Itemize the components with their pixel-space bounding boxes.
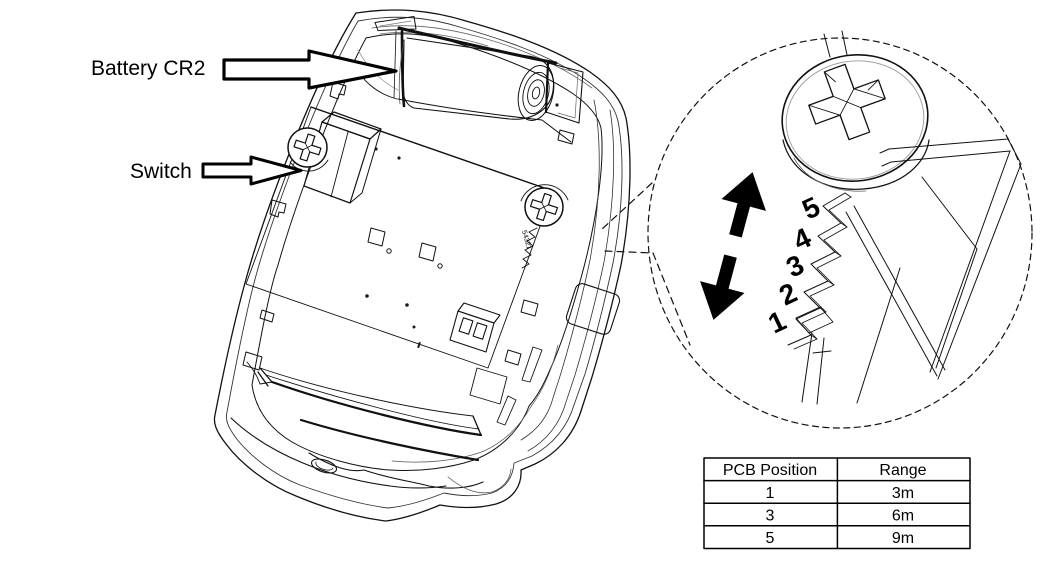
svg-text:3m: 3m <box>892 485 914 502</box>
svg-text:1: 1 <box>766 485 775 502</box>
svg-text:6m: 6m <box>892 508 914 525</box>
svg-text:Range: Range <box>879 462 926 479</box>
svg-text:5: 5 <box>797 191 824 226</box>
svg-text:Battery CR2: Battery CR2 <box>91 57 205 80</box>
svg-text:Switch: Switch <box>130 160 192 183</box>
svg-text:9m: 9m <box>892 530 914 547</box>
svg-text:3: 3 <box>766 508 775 525</box>
svg-text:5: 5 <box>766 530 775 547</box>
svg-text:PCB Position: PCB Position <box>723 462 817 479</box>
